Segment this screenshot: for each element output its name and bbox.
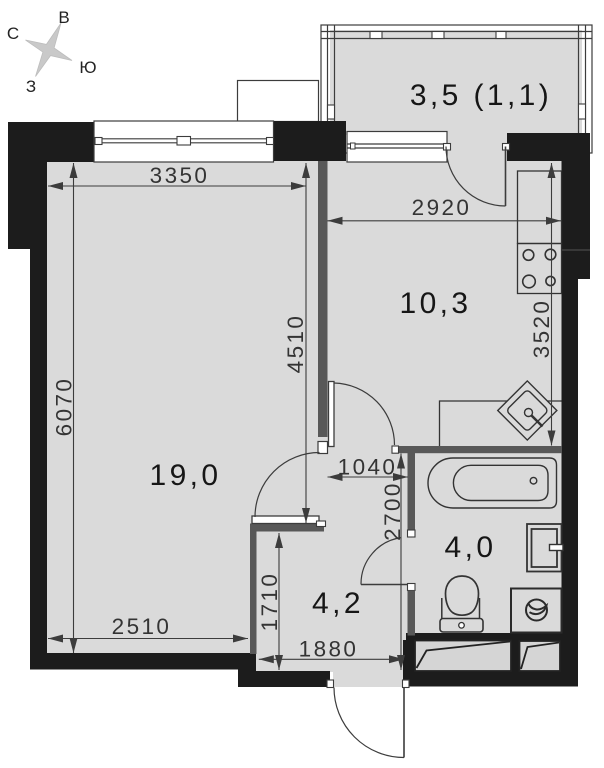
svg-text:1710: 1710 (257, 572, 282, 632)
svg-text:4510: 4510 (283, 314, 308, 374)
svg-text:2920: 2920 (412, 195, 472, 220)
svg-text:З: З (26, 77, 36, 96)
svg-text:2700: 2700 (380, 481, 405, 541)
svg-text:4,0: 4,0 (445, 531, 497, 564)
svg-text:В: В (58, 8, 69, 27)
svg-text:1040: 1040 (338, 455, 398, 480)
svg-text:3520: 3520 (529, 299, 554, 359)
svg-text:2510: 2510 (112, 614, 172, 639)
svg-text:Ю: Ю (79, 58, 96, 77)
svg-text:4,2: 4,2 (312, 587, 364, 620)
svg-text:3,5 (1,1): 3,5 (1,1) (410, 79, 552, 112)
svg-text:С: С (7, 24, 19, 43)
svg-text:10,3: 10,3 (400, 287, 472, 320)
svg-text:19,0: 19,0 (150, 459, 222, 492)
svg-text:1880: 1880 (299, 637, 359, 662)
svg-text:3350: 3350 (150, 163, 210, 188)
svg-text:6070: 6070 (52, 377, 77, 437)
